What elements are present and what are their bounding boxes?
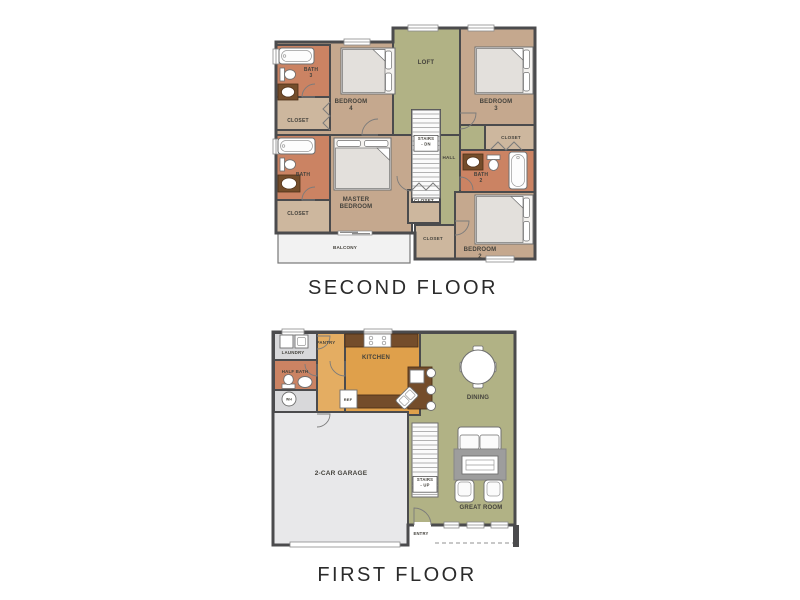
toilet-tank bbox=[280, 68, 285, 81]
garage-door bbox=[290, 542, 400, 547]
toilet-tank bbox=[487, 155, 500, 160]
room-label-line: LAUNDRY bbox=[282, 350, 305, 355]
room-label-line: REF bbox=[344, 397, 353, 402]
room-label-line: BALCONY bbox=[333, 245, 357, 250]
sliding-door bbox=[338, 231, 372, 235]
bathtub-basin bbox=[512, 155, 525, 187]
room-label-line: CLOSET bbox=[501, 135, 521, 140]
sofa-cushion bbox=[460, 435, 479, 449]
vanity-sink bbox=[467, 157, 480, 167]
bathtub-basin bbox=[281, 141, 313, 152]
bed-blanket bbox=[336, 148, 390, 189]
bar-stool bbox=[427, 402, 436, 411]
room-label-balcony: BALCONY bbox=[333, 245, 357, 250]
room-label-great-room: GREAT ROOM bbox=[460, 505, 503, 511]
bar-stool bbox=[427, 386, 436, 395]
toilet-tank bbox=[280, 158, 285, 171]
bed-blanket bbox=[477, 49, 524, 93]
room-label-ref: REF bbox=[344, 397, 353, 402]
room-garage bbox=[273, 412, 408, 545]
first-floor-drawing: LAUNDRYPANTRYKITCHENHALF BATHWHREFDINING… bbox=[268, 328, 526, 552]
sofa-cushion bbox=[480, 435, 499, 449]
room-label-line: DINING bbox=[467, 395, 489, 401]
floor-plan-sheet: BATH3CLOSETBEDROOM4LOFTBEDROOM3CLOSETSTA… bbox=[0, 0, 800, 600]
room-label-line: BATH bbox=[304, 67, 319, 73]
island-prep-sink bbox=[410, 370, 424, 383]
toilet-bowl bbox=[285, 70, 296, 80]
bed-pillow bbox=[524, 73, 530, 92]
room-label-loft: LOFT bbox=[418, 60, 435, 66]
room-label-pantry: PANTRY bbox=[317, 340, 336, 345]
room-label-kitchen: KITCHEN bbox=[362, 355, 390, 361]
bed-pillow bbox=[524, 222, 530, 242]
room-label-closet-hall: CLOSET bbox=[414, 198, 434, 203]
room-label-line: CLOSET bbox=[287, 118, 308, 124]
room-label-wh: WH bbox=[286, 398, 292, 402]
room-label-line: PANTRY bbox=[317, 340, 336, 345]
second-floor-caption: SECOND FLOOR bbox=[268, 277, 538, 300]
bar-stool bbox=[427, 369, 436, 378]
room-label-line: BEDROOM bbox=[340, 204, 373, 210]
second-floor-plan: BATH3CLOSETBEDROOM4LOFTBEDROOM3CLOSETSTA… bbox=[268, 18, 538, 270]
bed-pillow bbox=[386, 73, 392, 91]
stove bbox=[364, 334, 391, 347]
bed-pillow bbox=[365, 141, 389, 147]
room-label-line: 3 bbox=[494, 106, 498, 112]
room-label-half-bath: HALF BATH bbox=[282, 369, 309, 374]
room-label-line: - UP bbox=[420, 482, 429, 487]
room-label-line: KITCHEN bbox=[362, 355, 390, 361]
door-opening bbox=[414, 522, 431, 528]
room-label-closet-bedroom-2: CLOSET bbox=[423, 236, 443, 241]
porch-post bbox=[513, 525, 519, 547]
room-label-line: GREAT ROOM bbox=[460, 505, 503, 511]
room-closet-bedroom-4 bbox=[276, 97, 330, 130]
room-label-line: STAIRS bbox=[417, 477, 433, 482]
vanity-sink bbox=[282, 87, 295, 97]
room-label-line: BEDROOM bbox=[335, 99, 368, 105]
bed-blanket bbox=[343, 50, 386, 93]
first-floor-plan: LAUNDRYPANTRYKITCHENHALF BATHWHREFDINING… bbox=[268, 328, 526, 552]
second-floor-drawing: BATH3CLOSETBEDROOM4LOFTBEDROOM3CLOSETSTA… bbox=[268, 18, 538, 270]
room-label-line: CLOSET bbox=[423, 236, 443, 241]
room-label-entry: ENTRY bbox=[413, 531, 428, 536]
washer-dryer bbox=[280, 335, 293, 348]
room-label-line: MASTER bbox=[343, 197, 370, 203]
bed-pillow bbox=[386, 51, 392, 69]
room-label-line: 3 bbox=[310, 73, 313, 79]
armchair-seat bbox=[458, 482, 471, 496]
room-label-line: ENTRY bbox=[413, 531, 428, 536]
dining-table bbox=[461, 350, 495, 384]
room-label-line: 4 bbox=[349, 106, 353, 112]
room-label-dining: DINING bbox=[467, 395, 489, 401]
room-label-hall: HALL bbox=[442, 155, 455, 160]
room-label-line: HALF BATH bbox=[282, 369, 309, 374]
room-label-line: 2 bbox=[480, 178, 483, 184]
room-label-closet-bedroom-4: CLOSET bbox=[287, 118, 308, 124]
room-label-line: WH bbox=[286, 398, 292, 402]
room-closet-bedroom-2 bbox=[415, 225, 455, 259]
bed-pillow bbox=[337, 141, 361, 147]
room-label-bath-master: BATH bbox=[296, 172, 311, 178]
room-label-garage: 2-CAR GARAGE bbox=[315, 470, 368, 477]
sink bbox=[298, 377, 312, 388]
room-label-line: - DN bbox=[421, 141, 430, 146]
room-label-line: LOFT bbox=[418, 60, 435, 66]
bed-pillow bbox=[524, 50, 530, 69]
room-label-master-bedroom: MASTERBEDROOM bbox=[340, 197, 373, 210]
bed-pillow bbox=[524, 198, 530, 218]
room-label-line: CLOSET bbox=[287, 211, 308, 217]
room-label-line: BATH bbox=[474, 172, 489, 178]
room-label-line: 2 bbox=[478, 254, 482, 260]
room-label-closet-master: CLOSET bbox=[287, 211, 308, 217]
room-label-laundry: LAUNDRY bbox=[282, 350, 305, 355]
room-label-line: STAIRS bbox=[418, 136, 434, 141]
toilet-bowl bbox=[285, 160, 296, 170]
room-label-line: BEDROOM bbox=[480, 99, 513, 105]
first-floor-caption: FIRST FLOOR bbox=[262, 564, 532, 587]
room-label-line: BEDROOM bbox=[464, 247, 497, 253]
vanity-sink bbox=[282, 178, 297, 189]
room-label-closet-bedroom-3: CLOSET bbox=[501, 135, 521, 140]
washer-dryer bbox=[295, 335, 308, 348]
bed-blanket bbox=[477, 197, 524, 243]
room-label-line: HALL bbox=[442, 155, 455, 160]
toilet-bowl bbox=[489, 160, 499, 171]
room-label-line: BATH bbox=[296, 172, 311, 178]
room-label-line: 2-CAR GARAGE bbox=[315, 470, 368, 477]
toilet-bowl bbox=[284, 375, 294, 385]
room-label-line: CLOSET bbox=[414, 198, 434, 203]
armchair-seat bbox=[487, 482, 500, 496]
